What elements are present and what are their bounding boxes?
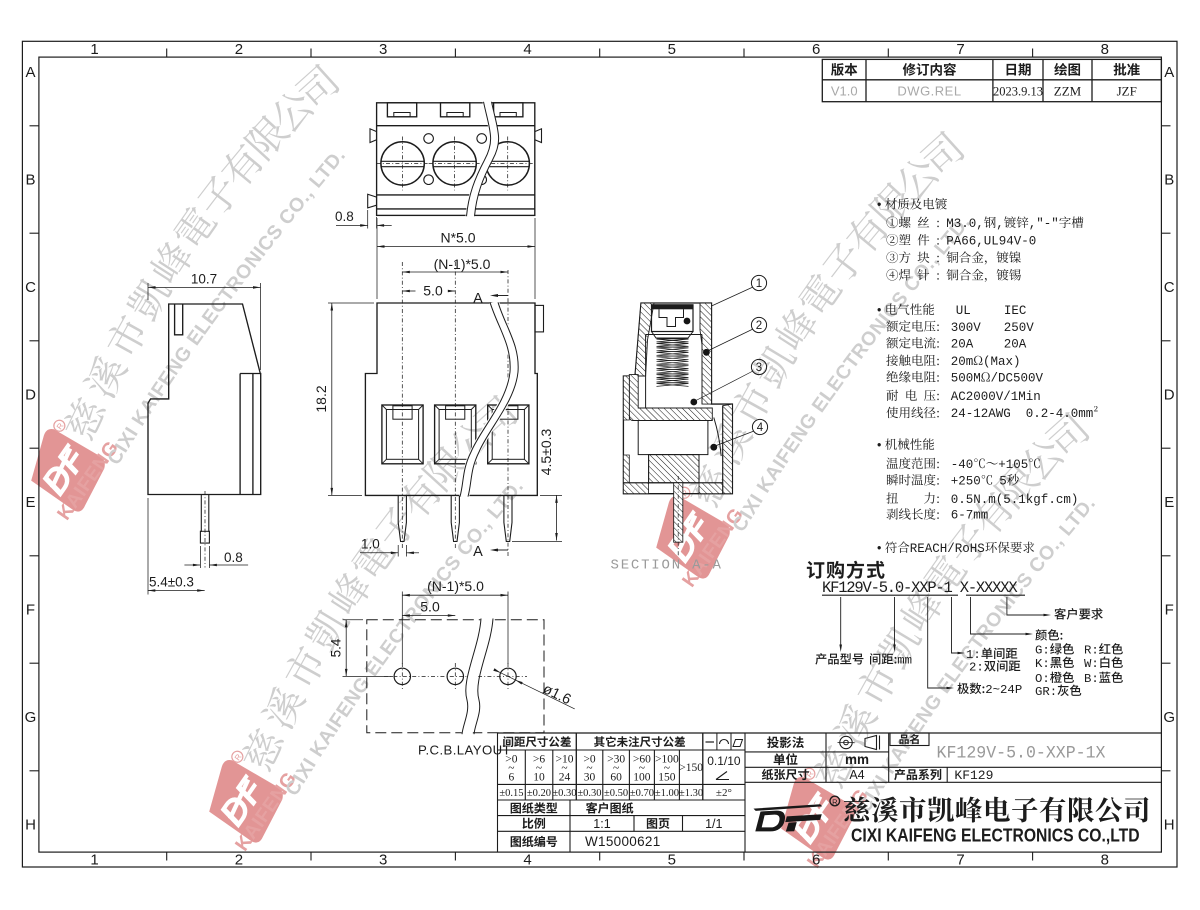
svg-text:A: A	[473, 291, 483, 307]
svg-text:5: 5	[668, 852, 676, 869]
svg-text:CIXI KAIFENG ELECTRONICS CO.,L: CIXI KAIFENG ELECTRONICS CO.,LTD	[851, 825, 1140, 846]
svg-text:G: G	[25, 709, 37, 726]
svg-text:1/1: 1/1	[705, 817, 722, 831]
svg-text:B: B	[25, 172, 35, 189]
svg-text:+105: +105	[998, 458, 1028, 472]
svg-text:20m: 20m	[951, 355, 974, 369]
svg-text:3: 3	[379, 41, 387, 58]
svg-text:±1.00: ±1.00	[655, 788, 679, 799]
svg-text:4: 4	[757, 422, 764, 434]
svg-text:D: D	[1164, 387, 1175, 404]
svg-text:SECTION A-A: SECTION A-A	[611, 558, 723, 574]
svg-text:/DC500V: /DC500V	[991, 372, 1044, 386]
svg-text:P.C.B.LAYOUT: P.C.B.LAYOUT	[418, 743, 511, 758]
svg-text:0.8: 0.8	[224, 550, 243, 565]
svg-text:±2°: ±2°	[716, 787, 732, 799]
svg-text:(Max): (Max)	[983, 355, 1021, 369]
svg-text:K:: K:	[1035, 657, 1050, 671]
svg-text:500M: 500M	[951, 372, 981, 386]
svg-text:0.2-4.0mm: 0.2-4.0mm	[1026, 407, 1094, 421]
svg-text:GR:: GR:	[1035, 685, 1057, 699]
svg-text:G:: G:	[1035, 644, 1050, 658]
svg-text:mm: mm	[845, 752, 869, 767]
svg-text:A: A	[1164, 64, 1174, 81]
svg-text:5: 5	[999, 475, 1007, 489]
svg-text:G: G	[1163, 709, 1175, 726]
svg-text:ZZM: ZZM	[1054, 84, 1082, 99]
svg-text:-40: -40	[951, 458, 974, 472]
svg-text:6: 6	[812, 852, 820, 869]
svg-text:2: 2	[235, 41, 243, 58]
svg-text:10: 10	[533, 772, 545, 784]
svg-text:±0.50: ±0.50	[604, 788, 628, 799]
svg-text:18.2: 18.2	[313, 385, 329, 412]
svg-text:8: 8	[1101, 852, 1109, 869]
svg-text:1:1: 1:1	[593, 817, 610, 831]
svg-text:V1.0: V1.0	[831, 84, 858, 99]
svg-text:N*5.0: N*5.0	[440, 230, 475, 246]
svg-text:24-12AWG: 24-12AWG	[951, 407, 1011, 421]
svg-text:D: D	[25, 387, 36, 404]
svg-text:10.7: 10.7	[191, 272, 217, 287]
svg-text:•: •	[877, 541, 881, 555]
svg-text:2: 2	[235, 852, 243, 869]
svg-text:0.5N.m(5.1kgf.cm): 0.5N.m(5.1kgf.cm)	[951, 493, 1079, 507]
svg-text:7: 7	[956, 852, 964, 869]
svg-text:IEC: IEC	[1004, 304, 1027, 318]
svg-text:3: 3	[379, 852, 387, 869]
svg-text:5: 5	[668, 41, 676, 58]
svg-text:3: 3	[756, 362, 762, 374]
svg-text:250V: 250V	[1004, 321, 1035, 335]
svg-text:5.0: 5.0	[423, 282, 443, 298]
svg-text:E: E	[1164, 494, 1174, 511]
svg-text:REACH/RoHS: REACH/RoHS	[910, 542, 985, 556]
svg-text:C: C	[1164, 279, 1175, 296]
svg-text:R:: R:	[1084, 644, 1099, 658]
svg-text:R: R	[832, 797, 838, 806]
svg-text:UL: UL	[956, 304, 971, 318]
svg-text:(N-1)*5.0: (N-1)*5.0	[434, 256, 491, 272]
svg-text:2:: 2:	[969, 661, 984, 675]
svg-text:W:: W:	[1084, 657, 1099, 671]
svg-text:±0.30: ±0.30	[577, 788, 601, 799]
svg-text:6-7mm: 6-7mm	[951, 509, 989, 523]
svg-text:DWG.REL: DWG.REL	[897, 84, 961, 99]
svg-text:5.4±0.3: 5.4±0.3	[149, 575, 194, 590]
svg-text:F: F	[26, 602, 35, 619]
svg-text:24: 24	[559, 772, 571, 784]
svg-text:20A: 20A	[1004, 338, 1027, 352]
svg-text:1: 1	[90, 41, 98, 58]
svg-text:ø1.6: ø1.6	[540, 681, 573, 708]
svg-text:E: E	[25, 494, 35, 511]
svg-text:6: 6	[509, 772, 515, 784]
svg-text:2~24P: 2~24P	[985, 683, 1022, 697]
svg-text:7: 7	[956, 41, 964, 58]
svg-text:A: A	[25, 64, 35, 81]
svg-text:•: •	[877, 438, 881, 452]
svg-text:±0.20: ±0.20	[527, 788, 551, 799]
svg-text:,"-": ,"-"	[1029, 217, 1059, 231]
svg-text:H: H	[1164, 817, 1175, 834]
svg-text:8: 8	[1101, 41, 1109, 58]
svg-text:20A: 20A	[951, 338, 974, 352]
svg-text:30: 30	[584, 772, 596, 784]
svg-text:+250: +250	[951, 475, 981, 489]
svg-text:O:: O:	[1035, 672, 1050, 686]
svg-text:B:: B:	[1084, 672, 1099, 686]
svg-text:0.8: 0.8	[335, 209, 354, 224]
svg-text:KF129V-5.0-XXP-1 X-XXXXX: KF129V-5.0-XXP-1 X-XXXXX	[822, 579, 1018, 597]
svg-text:1.0: 1.0	[361, 537, 380, 552]
svg-text:5.0: 5.0	[420, 599, 440, 615]
svg-text:4: 4	[523, 852, 531, 869]
svg-text:±0.15: ±0.15	[499, 788, 523, 799]
svg-text:150: 150	[658, 772, 676, 784]
svg-text:H: H	[25, 817, 36, 834]
svg-text:,: ,	[996, 217, 1004, 231]
svg-text:0.1/10: 0.1/10	[707, 754, 741, 768]
svg-text:KF129: KF129	[954, 768, 993, 783]
svg-text:•: •	[877, 303, 881, 317]
svg-text:1: 1	[90, 852, 98, 869]
svg-text:•: •	[877, 198, 881, 212]
svg-text:A: A	[473, 544, 483, 560]
svg-text:F: F	[1165, 602, 1174, 619]
svg-text:(N-1)*5.0: (N-1)*5.0	[427, 578, 484, 594]
svg-text:4: 4	[523, 41, 531, 58]
svg-text:M3.0,: M3.0,	[946, 217, 984, 231]
svg-text:4.5±0.3: 4.5±0.3	[538, 428, 554, 475]
svg-text:A4: A4	[849, 768, 864, 782]
svg-text:6: 6	[812, 41, 820, 58]
svg-text:300V: 300V	[951, 321, 982, 335]
svg-text:1: 1	[756, 278, 762, 290]
svg-text:C: C	[25, 279, 36, 296]
svg-text:±0.70: ±0.70	[630, 788, 654, 799]
svg-text:KF129V-5.0-XXP-1X: KF129V-5.0-XXP-1X	[937, 744, 1106, 764]
svg-text:60: 60	[610, 772, 622, 784]
svg-text:JZF: JZF	[1117, 84, 1137, 99]
svg-text:>150: >150	[679, 762, 703, 774]
svg-text:mm: mm	[897, 654, 912, 668]
svg-text:CIXI KAIFENG ELECTRONICS CO.,: CIXI KAIFENG ELECTRONICS CO., LTD.	[728, 211, 975, 535]
svg-text:W15000621: W15000621	[585, 834, 661, 849]
svg-text:B: B	[1164, 172, 1174, 189]
svg-text:PA66,UL94V-0: PA66,UL94V-0	[946, 235, 1036, 249]
svg-text:5.4: 5.4	[329, 638, 344, 657]
svg-text:2: 2	[756, 320, 762, 332]
svg-text:±1.30: ±1.30	[679, 788, 703, 799]
svg-text:CIXI KAIFENG ELECTRONICS CO.,: CIXI KAIFENG ELECTRONICS CO., LTD.	[103, 144, 350, 468]
svg-text:100: 100	[633, 772, 651, 784]
svg-text:±0.30: ±0.30	[552, 788, 576, 799]
svg-text:AC2000V/1Min: AC2000V/1Min	[951, 390, 1041, 404]
svg-text:2023.9.13: 2023.9.13	[993, 85, 1043, 99]
